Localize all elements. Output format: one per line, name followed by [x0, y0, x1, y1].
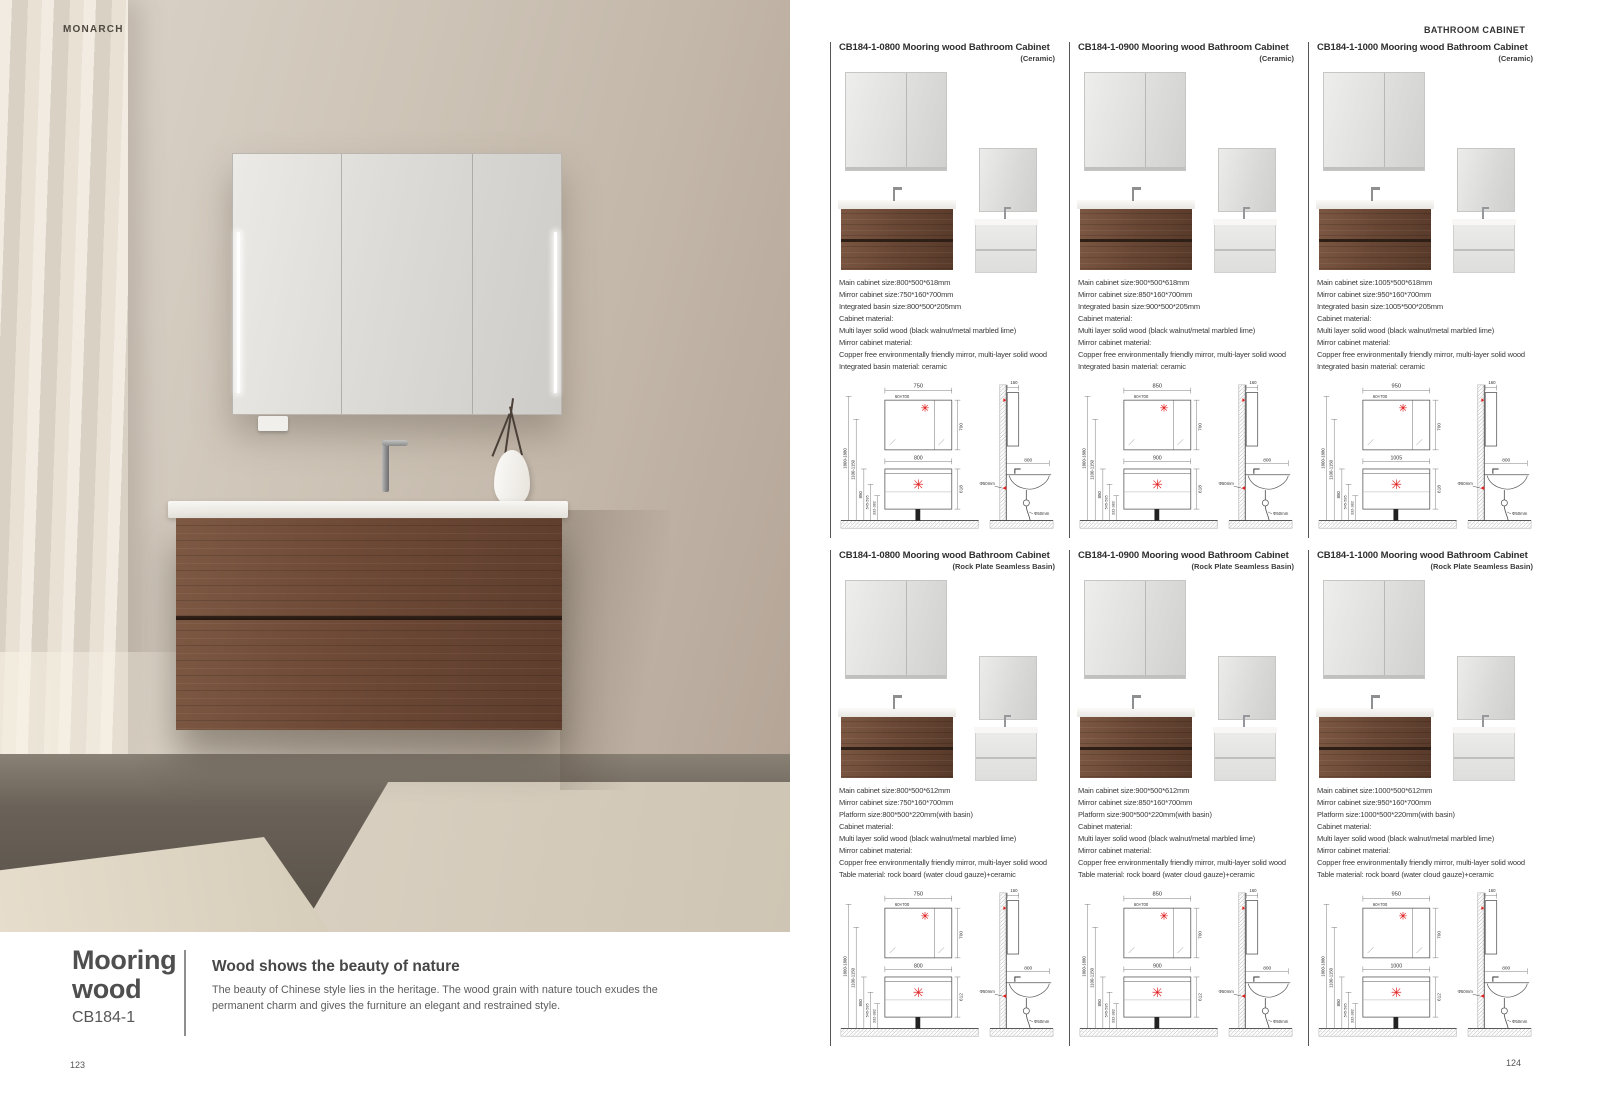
dim-install-height: 1800-1880	[1082, 956, 1087, 977]
technical-drawing: 950 60×700 700 1005	[1317, 377, 1533, 538]
wood-vanity-image	[841, 208, 953, 270]
dim-led-strip: 60×700	[895, 394, 910, 399]
dim-mirror-height: 700	[1197, 423, 1203, 431]
dim-cabinet-height: 612	[1197, 993, 1203, 1001]
shelf-object	[258, 416, 288, 431]
brand-logo: MONARCH	[63, 24, 124, 35]
white-vanity-image	[975, 223, 1037, 273]
dim-counter-height: 850	[1336, 491, 1341, 499]
dim-mirror-width: 750	[914, 384, 924, 390]
side-mirror-image	[979, 656, 1037, 720]
dim-range-2: 332-382	[872, 501, 876, 515]
dim-cabinet-height: 618	[1436, 485, 1442, 493]
faucet-icon	[1243, 715, 1245, 727]
page-number-right: 124	[1506, 1058, 1521, 1068]
technical-drawing: 850 60×700 700 900	[1078, 885, 1294, 1046]
dim-mirror-width: 750	[914, 892, 924, 898]
dim-mid-height: 1100-1150	[850, 967, 855, 988]
mirror-door-seam	[341, 154, 342, 414]
dim-cabinet-height: 618	[1197, 485, 1203, 493]
faucet-icon	[1132, 695, 1135, 709]
spec-line: Mirror cabinet size:950*160*700mm	[1317, 289, 1533, 301]
card-header: CB184-1-0800 Mooring wood Bathroom Cabin…	[839, 42, 1055, 68]
faucet	[382, 440, 389, 492]
spec-line: Integrated basin material: ceramic	[1078, 361, 1294, 373]
faucet-spout	[382, 440, 408, 446]
dim-range-1: 545-595	[866, 495, 870, 509]
dim-drain-1: Φ50mm	[979, 989, 995, 994]
dim-cabinet-width: 1005	[1390, 455, 1402, 461]
spec-line: Main cabinet size:900*500*618mm	[1078, 277, 1294, 289]
dim-mid-height: 1100-1150	[850, 459, 855, 480]
dim-side-width: 800	[1024, 965, 1032, 971]
wood-vanity-image	[1080, 208, 1192, 270]
dim-install-height: 1800-1880	[843, 956, 848, 977]
spec-line: Table material: rock board (water cloud …	[839, 869, 1055, 881]
mirror-cabinet-photo	[232, 153, 562, 415]
dim-counter-height: 850	[1097, 491, 1102, 499]
spec-line: Mirror cabinet size:850*160*700mm	[1078, 289, 1294, 301]
dim-side-width: 800	[1024, 457, 1032, 463]
dim-mirror-width: 950	[1392, 892, 1402, 898]
faucet-icon	[1482, 715, 1484, 727]
dim-led-strip: 60×700	[895, 902, 910, 907]
spec-line: Copper free environmentally friendly mir…	[839, 349, 1055, 361]
dim-range-1: 545-595	[1344, 1003, 1348, 1017]
wood-vanity-image	[841, 716, 953, 778]
dim-mid-height: 1100-1150	[1089, 967, 1094, 988]
wood-vanity-image	[1319, 208, 1431, 270]
led-strip	[554, 232, 557, 393]
spec-line: Cabinet material:	[1317, 821, 1533, 833]
side-mirror-image	[1218, 656, 1276, 720]
dim-range-2: 332-382	[1350, 501, 1354, 515]
drawer-seam	[176, 616, 562, 620]
text-divider	[184, 950, 186, 1036]
spec-list: Main cabinet size:1000*500*612mm Mirror …	[1317, 785, 1533, 882]
dim-cabinet-height: 612	[958, 993, 964, 1001]
card-header: CB184-1-1000 Mooring wood Bathroom Cabin…	[1317, 42, 1533, 68]
spec-line: Multi layer solid wood (black walnut/met…	[1078, 833, 1294, 845]
dim-mirror-width: 850	[1153, 384, 1163, 390]
white-vanity-image	[1453, 731, 1515, 781]
white-vanity-image	[1214, 223, 1276, 273]
dim-side-width: 800	[1263, 457, 1271, 463]
card-header: CB184-1-1000 Mooring wood Bathroom Cabin…	[1317, 550, 1533, 576]
spec-line: Multi layer solid wood (black walnut/met…	[1317, 325, 1533, 337]
dim-install-height: 1800-1880	[1321, 448, 1326, 469]
technical-drawing: 850 60×700 700 900	[1078, 377, 1294, 538]
product-variant: (Ceramic)	[1078, 54, 1294, 63]
product-variant: (Ceramic)	[1317, 54, 1533, 63]
dim-drain-1: Φ50mm	[1218, 481, 1234, 486]
faucet-icon	[1482, 207, 1484, 219]
dim-drain-2: Φ50mm	[1034, 1019, 1050, 1024]
spec-line: Main cabinet size:1005*500*618mm	[1317, 277, 1533, 289]
dim-install-height: 1800-1880	[843, 448, 848, 469]
spec-line: Mirror cabinet material:	[1078, 337, 1294, 349]
technical-drawing: 750 60×700 700 800	[839, 377, 1055, 538]
series-code: CB184-1	[72, 1009, 176, 1027]
wood-vanity-image	[1319, 716, 1431, 778]
dim-counter-height: 850	[1097, 999, 1102, 1007]
dim-mid-height: 1100-1150	[1328, 967, 1333, 988]
spec-line: Copper free environmentally friendly mir…	[839, 857, 1055, 869]
faucet-icon	[1371, 695, 1374, 709]
wood-grain	[176, 518, 562, 730]
description: The beauty of Chinese style lies in the …	[212, 982, 672, 1014]
white-vanity-image	[1453, 223, 1515, 273]
spec-line: Main cabinet size:1000*500*612mm	[1317, 785, 1533, 797]
mirror-door-seam	[472, 154, 473, 414]
mirror-cabinet-image	[845, 72, 947, 171]
spec-line: Multi layer solid wood (black walnut/met…	[839, 833, 1055, 845]
spec-line: Platform size:1000*500*220mm(with basin)	[1317, 809, 1533, 821]
dim-drain-2: Φ50mm	[1273, 511, 1289, 516]
dim-mirror-height: 700	[1197, 931, 1203, 939]
faucet-icon	[1243, 207, 1245, 219]
dim-mirror-depth: 160	[1010, 380, 1018, 385]
faucet-icon	[893, 695, 896, 709]
product-photos	[839, 68, 1055, 273]
dim-range-2: 332-382	[1111, 1009, 1115, 1023]
product-variant: (Rock Plate Seamless Basin)	[839, 562, 1055, 571]
dim-mirror-height: 700	[1436, 423, 1442, 431]
product-title: CB184-1-1000 Mooring wood Bathroom Cabin…	[1317, 550, 1533, 561]
dim-drain-1: Φ50mm	[1218, 989, 1234, 994]
dim-range-2: 332-382	[1350, 1009, 1354, 1023]
dim-mirror-width: 850	[1153, 892, 1163, 898]
product-title: CB184-1-0800 Mooring wood Bathroom Cabin…	[839, 550, 1055, 561]
spec-list: Main cabinet size:1005*500*618mm Mirror …	[1317, 277, 1533, 374]
dim-drain-2: Φ50mm	[1512, 1019, 1528, 1024]
dim-mirror-depth: 160	[1249, 380, 1257, 385]
side-mirror-image	[1457, 656, 1515, 720]
spec-line: Mirror cabinet material:	[1317, 845, 1533, 857]
spec-line: Mirror cabinet size:750*160*700mm	[839, 797, 1055, 809]
dim-cabinet-height: 618	[958, 485, 964, 493]
technical-drawing: 950 60×700 700 1000	[1317, 885, 1533, 1046]
spec-list: Main cabinet size:800*500*618mm Mirror c…	[839, 277, 1055, 374]
spec-line: Mirror cabinet size:850*160*700mm	[1078, 797, 1294, 809]
dim-mirror-height: 700	[958, 931, 964, 939]
dim-drain-1: Φ50mm	[1457, 481, 1473, 486]
spec-line: Table material: rock board (water cloud …	[1078, 869, 1294, 881]
dim-drain-2: Φ50mm	[1034, 511, 1050, 516]
product-title: CB184-1-0900 Mooring wood Bathroom Cabin…	[1078, 42, 1294, 53]
faucet-icon	[1004, 207, 1006, 219]
spec-list: Main cabinet size:800*500*612mm Mirror c…	[839, 785, 1055, 882]
product-card: CB184-1-1000 Mooring wood Bathroom Cabin…	[1308, 42, 1533, 538]
spec-line: Main cabinet size:800*500*618mm	[839, 277, 1055, 289]
side-mirror-image	[1218, 148, 1276, 212]
product-title: CB184-1-0900 Mooring wood Bathroom Cabin…	[1078, 550, 1294, 561]
series-block: Mooring wood CB184-1	[72, 946, 176, 1027]
dim-led-strip: 60×700	[1373, 394, 1388, 399]
product-card: CB184-1-1000 Mooring wood Bathroom Cabin…	[1308, 550, 1533, 1046]
white-vanity-image	[1214, 731, 1276, 781]
product-variant: (Rock Plate Seamless Basin)	[1078, 562, 1294, 571]
product-photos	[1317, 68, 1533, 273]
mirror-cabinet-image	[1323, 580, 1425, 679]
spec-line: Integrated basin material: ceramic	[1317, 361, 1533, 373]
spec-line: Multi layer solid wood (black walnut/met…	[1078, 325, 1294, 337]
product-grid: CB184-1-0800 Mooring wood Bathroom Cabin…	[830, 42, 1536, 1046]
spec-line: Platform size:900*500*220mm(with basin)	[1078, 809, 1294, 821]
product-card: CB184-1-0900 Mooring wood Bathroom Cabin…	[1069, 550, 1294, 1046]
dim-counter-height: 850	[858, 999, 863, 1007]
product-variant: (Rock Plate Seamless Basin)	[1317, 562, 1533, 571]
dim-cabinet-width: 900	[1153, 455, 1162, 461]
spec-line: Cabinet material:	[1078, 313, 1294, 325]
dim-side-width: 800	[1502, 965, 1510, 971]
dim-mid-height: 1100-1150	[1328, 459, 1333, 480]
side-mirror-image	[1457, 148, 1515, 212]
dim-counter-height: 850	[1336, 999, 1341, 1007]
lifestyle-photo: MONARCH	[0, 0, 790, 932]
dim-drain-1: Φ50mm	[979, 481, 995, 486]
spec-line: Integrated basin size:1005*500*205mm	[1317, 301, 1533, 313]
dim-drain-1: Φ50mm	[1457, 989, 1473, 994]
spec-line: Mirror cabinet material:	[1078, 845, 1294, 857]
mirror-cabinet-image	[1084, 580, 1186, 679]
dim-install-height: 1800-1880	[1082, 448, 1087, 469]
dim-cabinet-width: 900	[1153, 963, 1162, 969]
faucet-icon	[1132, 187, 1135, 201]
dim-led-strip: 60×700	[1134, 394, 1149, 399]
mirror-cabinet-image	[1084, 72, 1186, 171]
product-card: CB184-1-0900 Mooring wood Bathroom Cabin…	[1069, 42, 1294, 538]
spec-line: Copper free environmentally friendly mir…	[1078, 349, 1294, 361]
spec-line: Integrated basin size:900*500*205mm	[1078, 301, 1294, 313]
faucet-icon	[1004, 715, 1006, 727]
dim-side-width: 800	[1502, 457, 1510, 463]
spec-list: Main cabinet size:900*500*618mm Mirror c…	[1078, 277, 1294, 374]
series-name-line2: wood	[72, 975, 176, 1004]
product-photos	[839, 576, 1055, 781]
section-header: BATHROOM CABINET	[1424, 25, 1525, 35]
dim-mirror-width: 950	[1392, 384, 1402, 390]
spec-line: Copper free environmentally friendly mir…	[1317, 349, 1533, 361]
product-photos	[1078, 68, 1294, 273]
spec-line: Mirror cabinet size:750*160*700mm	[839, 289, 1055, 301]
wood-vanity-image	[1080, 716, 1192, 778]
spec-line: Cabinet material:	[1078, 821, 1294, 833]
dim-led-strip: 60×700	[1134, 902, 1149, 907]
spec-line: Cabinet material:	[1317, 313, 1533, 325]
dim-mirror-depth: 160	[1488, 888, 1496, 893]
spec-line: Copper free environmentally friendly mir…	[1078, 857, 1294, 869]
dim-range-1: 545-595	[1344, 495, 1348, 509]
product-variant: (Ceramic)	[839, 54, 1055, 63]
product-card: CB184-1-0800 Mooring wood Bathroom Cabin…	[830, 42, 1055, 538]
spec-line: Mirror cabinet size:950*160*700mm	[1317, 797, 1533, 809]
faucet-icon	[1371, 187, 1374, 201]
dim-mid-height: 1100-1150	[1089, 459, 1094, 480]
dim-side-width: 800	[1263, 965, 1271, 971]
product-photos	[1078, 576, 1294, 781]
dim-install-height: 1800-1880	[1321, 956, 1326, 977]
spec-line: Table material: rock board (water cloud …	[1317, 869, 1533, 881]
dim-mirror-height: 700	[958, 423, 964, 431]
technical-drawing: 750 60×700 700 800	[839, 885, 1055, 1046]
vase	[494, 450, 530, 506]
spec-list: Main cabinet size:900*500*612mm Mirror c…	[1078, 785, 1294, 882]
page-number-left: 123	[70, 1060, 85, 1070]
spec-line: Mirror cabinet material:	[1317, 337, 1533, 349]
card-header: CB184-1-0900 Mooring wood Bathroom Cabin…	[1078, 550, 1294, 576]
spec-line: Integrated basin material: ceramic	[839, 361, 1055, 373]
dim-mirror-depth: 160	[1010, 888, 1018, 893]
dim-cabinet-width: 800	[914, 963, 923, 969]
series-name-line1: Mooring	[72, 946, 176, 975]
dim-mirror-depth: 160	[1249, 888, 1257, 893]
card-header: CB184-1-0800 Mooring wood Bathroom Cabin…	[839, 550, 1055, 576]
dim-range-1: 545-595	[1105, 1003, 1109, 1017]
spec-line: Main cabinet size:800*500*612mm	[839, 785, 1055, 797]
dim-range-1: 545-595	[1105, 495, 1109, 509]
product-photos	[1317, 576, 1533, 781]
card-header: CB184-1-0900 Mooring wood Bathroom Cabin…	[1078, 42, 1294, 68]
headline: Wood shows the beauty of nature	[212, 958, 460, 976]
mirror-cabinet-image	[845, 580, 947, 679]
wall-shadow	[560, 510, 670, 790]
white-vanity-image	[975, 731, 1037, 781]
spec-line: Mirror cabinet material:	[839, 337, 1055, 349]
product-card: CB184-1-0800 Mooring wood Bathroom Cabin…	[830, 550, 1055, 1046]
spec-line: Integrated basin size:800*500*205mm	[839, 301, 1055, 313]
dim-counter-height: 850	[858, 491, 863, 499]
spec-line: Copper free environmentally friendly mir…	[1317, 857, 1533, 869]
dim-led-strip: 60×700	[1373, 902, 1388, 907]
side-mirror-image	[979, 148, 1037, 212]
countertop	[168, 501, 568, 518]
dim-cabinet-width: 800	[914, 455, 923, 461]
spec-line: Platform size:800*500*220mm(with basin)	[839, 809, 1055, 821]
dim-cabinet-width: 1000	[1390, 963, 1402, 969]
dim-mirror-depth: 160	[1488, 380, 1496, 385]
mirror-cabinet-image	[1323, 72, 1425, 171]
dim-range-2: 332-382	[1111, 501, 1115, 515]
spec-line: Mirror cabinet material:	[839, 845, 1055, 857]
dim-range-1: 545-595	[866, 1003, 870, 1017]
faucet-icon	[893, 187, 896, 201]
dim-cabinet-height: 612	[1436, 993, 1442, 1001]
led-strip	[237, 232, 240, 393]
dim-range-2: 332-382	[872, 1009, 876, 1023]
spec-line: Main cabinet size:900*500*612mm	[1078, 785, 1294, 797]
dim-drain-2: Φ50mm	[1273, 1019, 1289, 1024]
dim-mirror-height: 700	[1436, 931, 1442, 939]
spec-line: Multi layer solid wood (black walnut/met…	[1317, 833, 1533, 845]
product-title: CB184-1-1000 Mooring wood Bathroom Cabin…	[1317, 42, 1533, 53]
spec-line: Cabinet material:	[839, 313, 1055, 325]
dim-drain-2: Φ50mm	[1512, 511, 1528, 516]
product-title: CB184-1-0800 Mooring wood Bathroom Cabin…	[839, 42, 1055, 53]
wood-vanity-photo	[176, 518, 562, 730]
spec-line: Cabinet material:	[839, 821, 1055, 833]
spec-line: Multi layer solid wood (black walnut/met…	[839, 325, 1055, 337]
